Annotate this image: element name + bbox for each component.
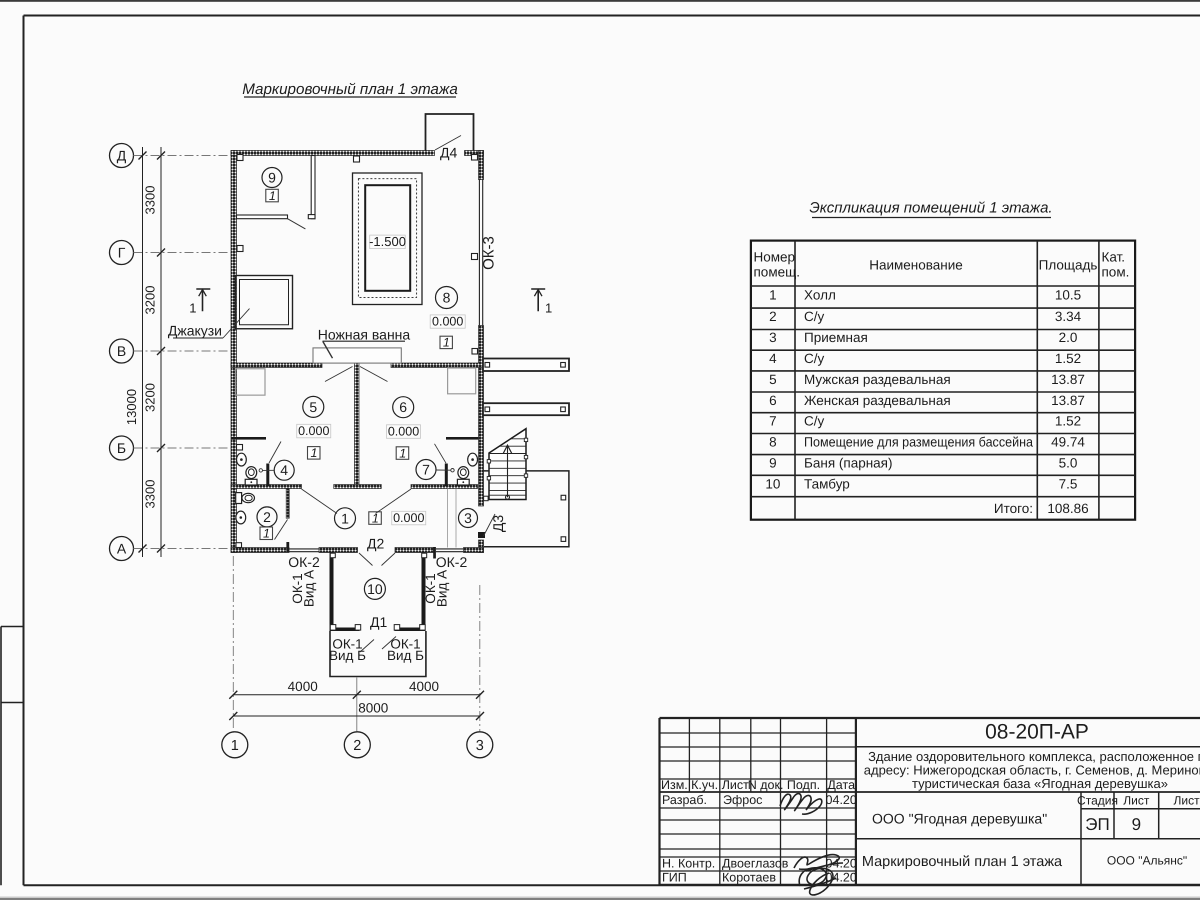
svg-text:5: 5 <box>309 399 317 415</box>
svg-text:9: 9 <box>769 456 777 471</box>
svg-text:Джакузи: Джакузи <box>168 323 222 339</box>
svg-text:Д1: Д1 <box>370 614 387 630</box>
svg-text:3: 3 <box>769 330 777 345</box>
svg-text:13.87: 13.87 <box>1051 393 1085 408</box>
svg-text:7: 7 <box>769 414 777 429</box>
svg-text:Экспликация помещений 1 этажа.: Экспликация помещений 1 этажа. <box>809 200 1052 217</box>
svg-text:8: 8 <box>769 435 777 450</box>
svg-text:08-20П-АР: 08-20П-АР <box>985 721 1089 744</box>
svg-text:В: В <box>117 343 126 359</box>
svg-text:10: 10 <box>765 477 780 492</box>
svg-text:1: 1 <box>269 189 276 203</box>
svg-text:4: 4 <box>280 462 288 478</box>
svg-text:Тамбур: Тамбур <box>804 477 850 492</box>
svg-text:Холл: Холл <box>804 288 836 303</box>
svg-text:Подп.: Подп. <box>787 778 820 792</box>
svg-text:ЭП: ЭП <box>1085 815 1109 834</box>
svg-text:1: 1 <box>372 511 379 525</box>
svg-text:помещ.: помещ. <box>754 265 800 280</box>
svg-text:Коротаев: Коротаев <box>722 871 776 885</box>
svg-text:Итого:: Итого: <box>994 501 1033 516</box>
svg-text:Д2: Д2 <box>367 536 384 552</box>
svg-text:0.000: 0.000 <box>388 425 419 439</box>
svg-text:Разраб.: Разраб. <box>662 793 707 807</box>
svg-text:3.34: 3.34 <box>1055 309 1082 324</box>
svg-text:Помещение для размещения бассе: Помещение для размещения бассейна <box>804 435 1033 450</box>
svg-text:3: 3 <box>476 738 484 754</box>
svg-text:Номер: Номер <box>754 250 796 265</box>
svg-text:2: 2 <box>769 309 777 324</box>
svg-text:К.уч.: К.уч. <box>691 778 718 792</box>
svg-text:Эфрос: Эфрос <box>723 793 762 807</box>
svg-text:Изм.: Изм. <box>661 778 688 792</box>
svg-text:Кат.: Кат. <box>1102 250 1126 265</box>
svg-text:Приемная: Приемная <box>804 330 868 345</box>
svg-text:Маркировочный план 1 этажа: Маркировочный план 1 этажа <box>862 854 1063 870</box>
svg-text:1: 1 <box>399 446 406 460</box>
svg-text:3200: 3200 <box>143 383 158 412</box>
svg-text:Баня (парная): Баня (парная) <box>804 456 892 471</box>
svg-text:4: 4 <box>769 351 777 366</box>
svg-text:Стадия: Стадия <box>1077 794 1118 808</box>
svg-text:Г: Г <box>118 245 126 261</box>
svg-text:Листов: Листов <box>1174 794 1200 808</box>
svg-text:0.000: 0.000 <box>393 511 424 525</box>
svg-text:Площадь: Площадь <box>1039 258 1098 273</box>
svg-text:ГИП: ГИП <box>662 871 687 885</box>
svg-text:С/у: С/у <box>804 351 825 366</box>
svg-text:Маркировочный план 1 этажа: Маркировочный план 1 этажа <box>242 81 458 98</box>
svg-text:04.20: 04.20 <box>826 793 857 807</box>
svg-text:Вид Б: Вид Б <box>329 648 366 663</box>
svg-text:1: 1 <box>545 301 552 316</box>
svg-text:А: А <box>117 541 127 557</box>
svg-text:С/у: С/у <box>804 414 825 429</box>
svg-text:1: 1 <box>231 738 239 754</box>
svg-text:1: 1 <box>769 288 777 303</box>
svg-text:4000: 4000 <box>409 679 439 694</box>
svg-text:6: 6 <box>399 399 407 415</box>
svg-text:3: 3 <box>464 510 472 526</box>
svg-text:Вид А: Вид А <box>302 570 317 607</box>
svg-text:0.000: 0.000 <box>298 424 329 438</box>
svg-text:ООО "Альянс": ООО "Альянс" <box>1107 854 1187 868</box>
svg-text:6: 6 <box>769 393 777 408</box>
svg-text:пом.: пом. <box>1102 265 1130 280</box>
svg-text:Двоеглазов: Двоеглазов <box>722 857 789 871</box>
svg-text:5.0: 5.0 <box>1059 456 1078 471</box>
svg-text:0.000: 0.000 <box>432 315 463 329</box>
svg-text:10: 10 <box>367 581 383 597</box>
svg-text:ОК-2: ОК-2 <box>436 554 468 570</box>
svg-text:1: 1 <box>443 336 450 350</box>
svg-text:8000: 8000 <box>358 700 388 715</box>
svg-text:1: 1 <box>189 301 196 316</box>
svg-text:Б: Б <box>117 440 126 456</box>
svg-text:13000: 13000 <box>124 389 139 425</box>
svg-text:Лист: Лист <box>722 778 749 792</box>
svg-text:108.86: 108.86 <box>1047 501 1088 516</box>
svg-text:3200: 3200 <box>143 286 158 315</box>
svg-text:С/у: С/у <box>804 309 825 324</box>
svg-text:1.52: 1.52 <box>1055 414 1081 429</box>
svg-text:10.5: 10.5 <box>1055 288 1081 303</box>
svg-text:Д3: Д3 <box>490 515 506 532</box>
svg-text:Д4: Д4 <box>440 145 457 161</box>
svg-text:туристическая база «Ягодная де: туристическая база «Ягодная деревушка» <box>912 776 1168 791</box>
svg-text:Женская раздевальная: Женская раздевальная <box>804 393 951 408</box>
svg-text:ОК-2: ОК-2 <box>288 554 320 570</box>
svg-text:1: 1 <box>311 446 318 460</box>
svg-text:ООО "Ягодная деревушка": ООО "Ягодная деревушка" <box>872 811 1047 827</box>
svg-text:Ножная ванна: Ножная ванна <box>318 327 411 343</box>
svg-text:Вид А: Вид А <box>435 570 450 607</box>
svg-text:5: 5 <box>769 372 777 387</box>
svg-text:1: 1 <box>341 510 349 526</box>
svg-text:Дата: Дата <box>827 778 855 792</box>
svg-text:Мужская раздевальная: Мужская раздевальная <box>804 372 951 387</box>
svg-text:49.74: 49.74 <box>1051 435 1085 450</box>
svg-text:ОК-3: ОК-3 <box>481 236 498 270</box>
svg-text:Н. Контр.: Н. Контр. <box>662 857 715 871</box>
svg-text:7.5: 7.5 <box>1059 477 1078 492</box>
svg-text:Д: Д <box>117 148 127 164</box>
svg-text:13.87: 13.87 <box>1051 372 1085 387</box>
svg-text:3300: 3300 <box>143 480 158 509</box>
svg-text:Наименование: Наименование <box>869 258 963 273</box>
svg-text:9: 9 <box>268 170 276 186</box>
svg-text:1: 1 <box>263 527 270 541</box>
svg-text:2: 2 <box>353 738 361 754</box>
svg-text:8: 8 <box>443 290 451 306</box>
svg-text:3300: 3300 <box>143 186 158 215</box>
svg-text:2.0: 2.0 <box>1059 330 1078 345</box>
svg-text:2: 2 <box>263 509 271 525</box>
svg-text:7: 7 <box>422 462 430 478</box>
svg-text:Лист: Лист <box>1123 794 1150 808</box>
svg-text:9: 9 <box>1132 815 1141 834</box>
svg-text:1.52: 1.52 <box>1055 351 1081 366</box>
svg-text:Вид Б: Вид Б <box>387 648 424 663</box>
svg-text:N док.: N док. <box>748 778 784 792</box>
svg-text:-1.500: -1.500 <box>369 234 406 249</box>
svg-text:4000: 4000 <box>288 679 318 694</box>
